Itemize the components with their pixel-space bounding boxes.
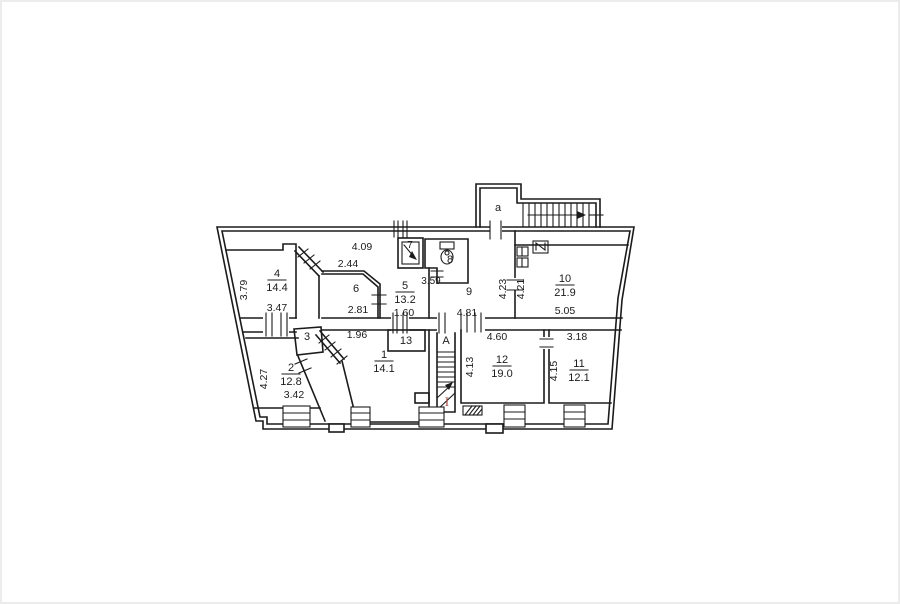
room-4: 4 14.4 3.47 3.79 (226, 244, 323, 318)
room10-area: 21.9 (554, 287, 575, 299)
room13-number: 13 (400, 335, 412, 347)
room-6: 6 4.09 2.44 2.81 (319, 241, 386, 318)
staircase-a: A I (437, 333, 455, 412)
window-frame (564, 405, 585, 427)
floor-plan-page: a 4 14.4 3.47 3.79 6 4.09 2.44 2.81 (0, 0, 900, 604)
room8-number: 8 (447, 254, 453, 266)
room11-height-dim: 4.15 (548, 361, 560, 382)
window-room1-left (351, 407, 370, 427)
room12-area: 19.0 (491, 368, 512, 380)
room10-height-dim: 4.21 (515, 279, 527, 300)
floor-number-marker: I (445, 395, 449, 409)
room11-number: 11 (573, 358, 584, 370)
room11-area: 12.1 (568, 372, 589, 384)
room4-number: 4 (274, 268, 280, 280)
toilet-tank (440, 242, 454, 249)
vestibule-label: a (495, 202, 502, 214)
hatch-lines (465, 406, 482, 415)
room6-partition-dim: 2.44 (338, 258, 359, 270)
room10-width-dim: 5.05 (555, 305, 576, 317)
room1-wall-notch (415, 393, 429, 403)
room10-number: 10 (559, 273, 571, 285)
top-wall-duct-ticks (394, 221, 407, 237)
room6-top-dim: 4.09 (352, 241, 373, 253)
room5-number: 5 (402, 280, 408, 292)
room2-area: 12.8 (280, 376, 301, 388)
room4-area: 14.4 (266, 282, 287, 294)
room1-width-dim: 1.96 (347, 329, 368, 341)
hatched-wall-segment (463, 406, 482, 415)
room9-width-dim: 4.81 (457, 307, 478, 319)
window-room12 (504, 405, 525, 427)
room4-width-dim: 3.47 (267, 302, 288, 314)
partition-room3-room1-diagonal (316, 331, 344, 363)
stair-treads (437, 352, 455, 387)
pilaster-center (486, 424, 503, 433)
staircase-label: A (442, 335, 450, 347)
vestibule-door-gap (490, 224, 502, 234)
floor-plan-svg: a 4 14.4 3.47 3.79 6 4.09 2.44 2.81 (0, 0, 900, 604)
stair-direction-arrow-head (577, 211, 586, 219)
window-frame (419, 407, 444, 427)
pilaster-left (329, 424, 344, 432)
room6-width-dim: 2.81 (348, 304, 369, 316)
vent-zigzag-icon (536, 243, 545, 250)
room12-number: 12 (496, 354, 508, 366)
room-10: 10 21.9 5.05 4.21 (515, 241, 628, 317)
door-gap-room4-room2 (263, 315, 289, 334)
room4-height-dim: 3.79 (238, 280, 250, 301)
room11-top-dim: 3.18 (567, 331, 588, 343)
window-room11 (564, 405, 585, 427)
room-11: 11 12.1 3.18 4.15 (540, 330, 611, 403)
room7-number: 7 (407, 240, 413, 251)
window-frame (351, 407, 370, 427)
room2-width-dim: 3.42 (284, 389, 305, 401)
room2-height-dim: 4.27 (258, 369, 270, 390)
window-frame (504, 405, 525, 427)
room12-height-dim: 4.13 (464, 357, 476, 378)
room9-height-dim: 4.23 (497, 279, 509, 300)
room1-area: 14.1 (373, 363, 394, 375)
room-12: 12 19.0 4.60 4.13 (461, 330, 544, 403)
room1-number: 1 (381, 349, 387, 361)
room6-partition-door-ticks (372, 295, 386, 304)
window-room1-right (419, 407, 444, 427)
room-8-wc: 8 3.59 (421, 239, 468, 287)
room3-number: 3 (304, 331, 310, 343)
room12-top-dim: 4.60 (487, 331, 508, 343)
room6-number: 6 (353, 283, 359, 295)
window-frame (283, 406, 310, 427)
room2-number: 2 (288, 362, 294, 374)
room8-width-dim: 3.59 (421, 276, 441, 287)
room5-area: 13.2 (394, 294, 415, 306)
room9-number: 9 (466, 286, 472, 298)
room-7-shaft: 7 (398, 238, 423, 268)
window-room2 (283, 406, 310, 427)
room5-width-dim: 1.60 (394, 307, 415, 319)
